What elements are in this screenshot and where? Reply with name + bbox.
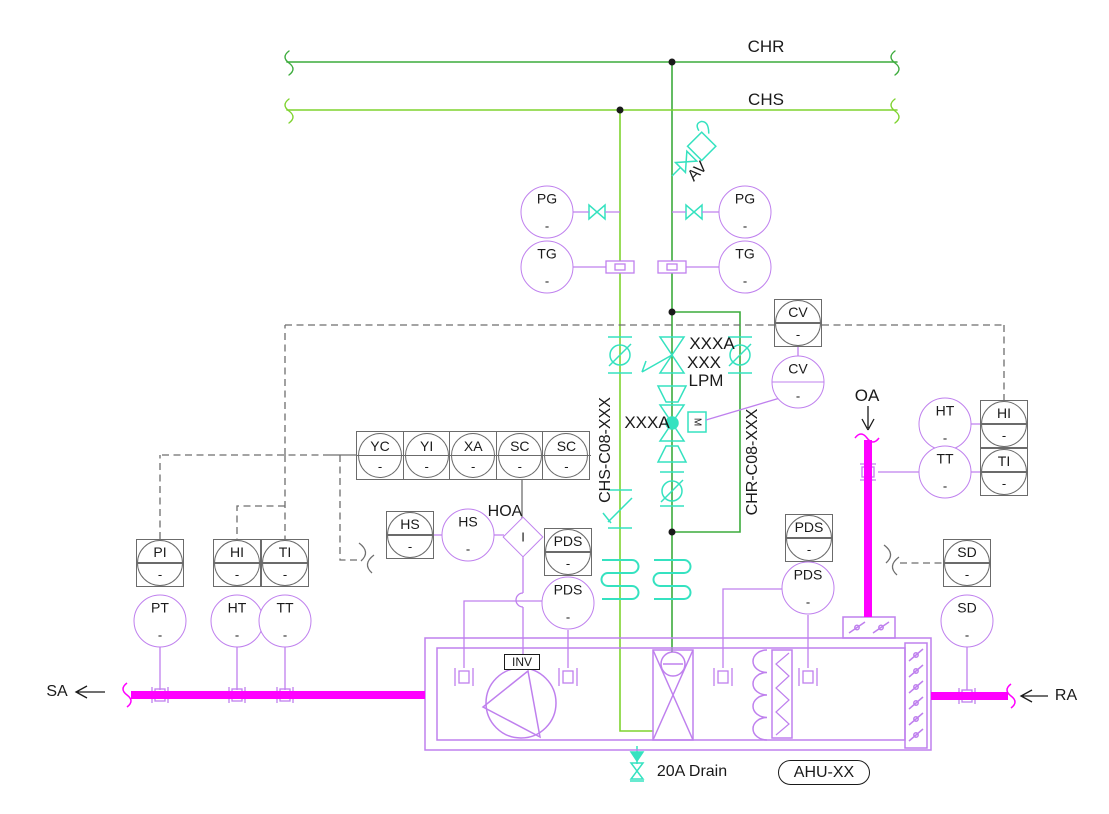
pipe-break-mark [891,99,899,123]
signal-break-mark [892,557,899,575]
valve-actuator-box [688,412,706,432]
signal-break-mark [884,545,891,563]
coil-fins-icon [753,650,767,740]
signal-break-mark [367,555,374,573]
pipe-break-mark [285,51,293,75]
oa-damper-icon [843,617,895,638]
signal-break-mark [359,543,366,561]
duct-tap-icon [152,464,975,704]
inverter-label: INV [512,655,532,669]
ra-arrow-icon [1021,690,1048,702]
isolation-valve-icon [686,205,702,219]
air-ducts [123,434,1015,708]
drain-valve-icon [630,746,644,781]
current-switch-label: I [510,524,537,551]
duct-break-mark [1007,684,1015,708]
pipe-break-mark [891,51,899,75]
pid-schematic-canvas: PG-TG-PG-TG-CV-CV-HS-HS-PDS-PDS-PI-HI-TI… [0,0,1109,814]
signal-wiring [160,325,1004,575]
return-damper-icon [905,643,927,748]
instrument-connections [152,212,980,704]
air-vent-icon [659,119,723,183]
oa-arrow-icon [862,406,874,430]
isolation-valve-icon [589,205,605,219]
thermowell-icon [606,261,686,273]
ahu-unit [425,617,931,750]
supply-fan-icon [483,668,556,738]
schematic-linework [0,0,1109,814]
pipe-junction-dots [617,59,676,536]
flow-arrows [76,406,1048,702]
inverter-box: INV [504,654,540,670]
check-valve-icon [603,498,632,523]
filter-icon [772,650,792,738]
pipe-break-mark [285,99,293,123]
cooling-coil-icon [653,650,693,740]
duct-break-mark [123,683,131,707]
chw-piping [285,51,899,731]
sa-arrow-icon [76,686,105,698]
unit-tag-label: AHU-XX [794,764,854,782]
unit-tag-oval: AHU-XX [778,760,870,785]
